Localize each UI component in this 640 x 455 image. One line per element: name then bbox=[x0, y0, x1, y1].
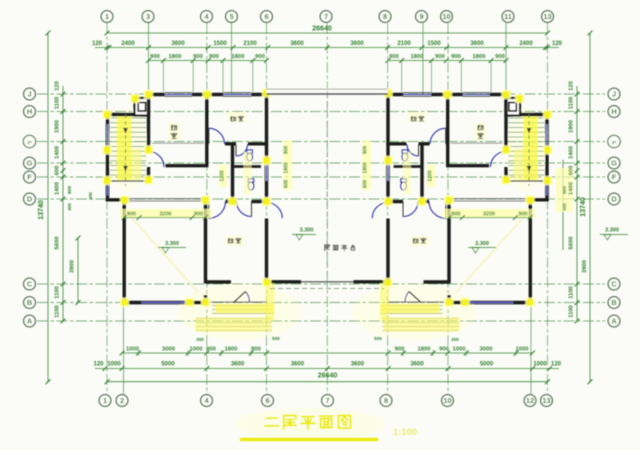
svg-text:400: 400 bbox=[88, 192, 93, 200]
svg-text:26640: 26640 bbox=[318, 373, 338, 380]
svg-text:3600: 3600 bbox=[351, 362, 365, 368]
svg-text:3.300: 3.300 bbox=[300, 228, 314, 234]
svg-text:J: J bbox=[27, 90, 31, 99]
svg-text:J: J bbox=[612, 90, 616, 99]
svg-text:800: 800 bbox=[562, 186, 568, 194]
svg-text:8: 8 bbox=[383, 12, 387, 21]
svg-text:1000: 1000 bbox=[453, 347, 466, 353]
svg-text:12: 12 bbox=[526, 396, 534, 405]
svg-text:900: 900 bbox=[194, 212, 203, 218]
svg-text:900: 900 bbox=[439, 347, 449, 353]
svg-text:G: G bbox=[27, 159, 33, 168]
svg-text:B: B bbox=[27, 298, 32, 307]
svg-text:3600: 3600 bbox=[410, 362, 424, 368]
svg-text:1000: 1000 bbox=[107, 362, 121, 368]
svg-text:1400: 1400 bbox=[569, 146, 575, 159]
svg-text:1500: 1500 bbox=[213, 41, 227, 47]
svg-text:G: G bbox=[611, 159, 617, 168]
svg-text:1000: 1000 bbox=[516, 347, 529, 353]
svg-text:120: 120 bbox=[93, 362, 104, 368]
svg-text:900: 900 bbox=[251, 347, 261, 353]
svg-text:400: 400 bbox=[562, 203, 567, 211]
svg-text:500: 500 bbox=[272, 336, 280, 341]
svg-text:3.300: 3.300 bbox=[605, 228, 619, 234]
svg-text:11: 11 bbox=[504, 12, 512, 21]
svg-text:2400: 2400 bbox=[519, 41, 533, 47]
svg-text:1400: 1400 bbox=[569, 182, 575, 195]
svg-text:C: C bbox=[27, 280, 33, 289]
svg-text:1800: 1800 bbox=[411, 54, 424, 60]
svg-text:1200: 1200 bbox=[220, 170, 226, 181]
svg-text:120: 120 bbox=[55, 81, 61, 91]
svg-text:900: 900 bbox=[284, 146, 290, 155]
svg-text:3900: 3900 bbox=[70, 260, 76, 273]
svg-text:A: A bbox=[611, 317, 617, 326]
svg-text:3200: 3200 bbox=[159, 212, 171, 218]
svg-text:120: 120 bbox=[92, 41, 103, 47]
svg-text:5000: 5000 bbox=[480, 362, 494, 368]
svg-text:300: 300 bbox=[451, 337, 459, 342]
svg-text:10: 10 bbox=[443, 396, 451, 405]
svg-text:1000: 1000 bbox=[533, 362, 547, 368]
svg-text:1100: 1100 bbox=[569, 286, 575, 299]
svg-text:13: 13 bbox=[543, 12, 551, 21]
svg-text:900: 900 bbox=[209, 54, 219, 60]
svg-text:13740: 13740 bbox=[38, 200, 45, 220]
svg-text:900: 900 bbox=[435, 54, 445, 60]
svg-text:13740: 13740 bbox=[580, 197, 587, 217]
svg-text:600: 600 bbox=[363, 180, 369, 189]
svg-text:1000: 1000 bbox=[126, 347, 139, 353]
svg-text:800: 800 bbox=[67, 186, 73, 194]
svg-text:300: 300 bbox=[196, 337, 204, 342]
svg-text:2100: 2100 bbox=[397, 41, 411, 47]
svg-text:3600: 3600 bbox=[350, 41, 364, 47]
svg-text:1800: 1800 bbox=[363, 162, 369, 173]
svg-text:1900: 1900 bbox=[55, 120, 61, 133]
svg-text:1400: 1400 bbox=[55, 182, 61, 195]
svg-text:F: F bbox=[612, 173, 617, 182]
svg-text:600: 600 bbox=[55, 166, 61, 176]
svg-text:2100: 2100 bbox=[243, 41, 257, 47]
svg-text:900: 900 bbox=[389, 54, 399, 60]
svg-text:1400: 1400 bbox=[55, 146, 61, 159]
svg-text:3600: 3600 bbox=[470, 41, 484, 47]
svg-text:3.300: 3.300 bbox=[475, 241, 489, 247]
svg-text:1800: 1800 bbox=[169, 54, 182, 60]
svg-text:5: 5 bbox=[229, 12, 233, 21]
svg-text:1800: 1800 bbox=[225, 347, 238, 353]
svg-text:2*: 2* bbox=[27, 140, 32, 146]
svg-text:3900: 3900 bbox=[582, 260, 588, 273]
svg-text:900: 900 bbox=[451, 212, 460, 218]
svg-text:1100: 1100 bbox=[569, 305, 575, 318]
svg-text:120: 120 bbox=[569, 81, 575, 91]
svg-text:9: 9 bbox=[419, 12, 423, 21]
svg-text:D: D bbox=[27, 195, 33, 204]
svg-text:C: C bbox=[611, 280, 617, 289]
svg-text:B: B bbox=[611, 298, 616, 307]
svg-text:3600: 3600 bbox=[290, 41, 304, 47]
svg-text:5000: 5000 bbox=[161, 362, 175, 368]
svg-text:1100: 1100 bbox=[55, 97, 61, 110]
svg-text:1000: 1000 bbox=[190, 347, 203, 353]
svg-text:900: 900 bbox=[518, 212, 527, 218]
svg-text:400: 400 bbox=[67, 203, 72, 211]
svg-text:5600: 5600 bbox=[569, 237, 575, 250]
svg-text:H: H bbox=[611, 107, 616, 116]
svg-text:900: 900 bbox=[206, 347, 216, 353]
svg-text:1: 1 bbox=[105, 12, 109, 21]
svg-text:900: 900 bbox=[193, 54, 203, 60]
svg-text:120: 120 bbox=[552, 41, 563, 47]
svg-text:3200: 3200 bbox=[483, 212, 495, 218]
svg-text:13: 13 bbox=[542, 396, 550, 405]
svg-text:H: H bbox=[27, 107, 32, 116]
svg-text:1800: 1800 bbox=[232, 54, 245, 60]
svg-text:1800: 1800 bbox=[418, 347, 431, 353]
svg-text:1800: 1800 bbox=[284, 162, 290, 173]
svg-text:900: 900 bbox=[395, 347, 405, 353]
svg-text:600: 600 bbox=[284, 180, 290, 189]
svg-text:1800: 1800 bbox=[473, 54, 486, 60]
svg-text:3000: 3000 bbox=[480, 347, 493, 353]
svg-text:3600: 3600 bbox=[231, 362, 245, 368]
svg-text:1900: 1900 bbox=[569, 120, 575, 133]
svg-text:10: 10 bbox=[442, 12, 450, 21]
svg-text:F: F bbox=[27, 173, 32, 182]
svg-text:1500: 1500 bbox=[427, 41, 441, 47]
svg-text:600: 600 bbox=[569, 166, 575, 176]
svg-text:3.300: 3.300 bbox=[165, 241, 179, 247]
svg-text:7: 7 bbox=[325, 396, 329, 405]
svg-text:3000: 3000 bbox=[162, 347, 175, 353]
svg-text:1:100: 1:100 bbox=[393, 427, 417, 438]
svg-text:900: 900 bbox=[363, 146, 369, 155]
svg-text:1: 1 bbox=[103, 396, 107, 405]
svg-text:5600: 5600 bbox=[55, 237, 61, 250]
svg-text:2*: 2* bbox=[612, 140, 617, 146]
svg-text:26640: 26640 bbox=[312, 26, 332, 33]
svg-text:3600: 3600 bbox=[171, 41, 185, 47]
svg-text:7: 7 bbox=[324, 12, 328, 21]
svg-text:900: 900 bbox=[127, 212, 136, 218]
svg-text:120: 120 bbox=[551, 362, 562, 368]
svg-text:6: 6 bbox=[265, 396, 269, 405]
svg-text:1200: 1200 bbox=[428, 170, 434, 181]
svg-text:3: 3 bbox=[146, 12, 150, 21]
svg-text:900: 900 bbox=[495, 54, 505, 60]
svg-text:1100: 1100 bbox=[55, 305, 61, 318]
svg-text:900: 900 bbox=[150, 54, 160, 60]
svg-text:A: A bbox=[27, 317, 33, 326]
svg-text:1100: 1100 bbox=[55, 286, 61, 299]
svg-text:D: D bbox=[611, 195, 617, 204]
svg-text:2: 2 bbox=[120, 396, 124, 405]
svg-text:900: 900 bbox=[255, 54, 265, 60]
svg-text:8: 8 bbox=[384, 396, 388, 405]
svg-text:500: 500 bbox=[374, 336, 382, 341]
svg-text:3600: 3600 bbox=[291, 362, 305, 368]
svg-text:6: 6 bbox=[264, 12, 268, 21]
svg-text:1100: 1100 bbox=[569, 97, 575, 110]
svg-text:900: 900 bbox=[451, 54, 461, 60]
svg-text:2400: 2400 bbox=[121, 41, 135, 47]
